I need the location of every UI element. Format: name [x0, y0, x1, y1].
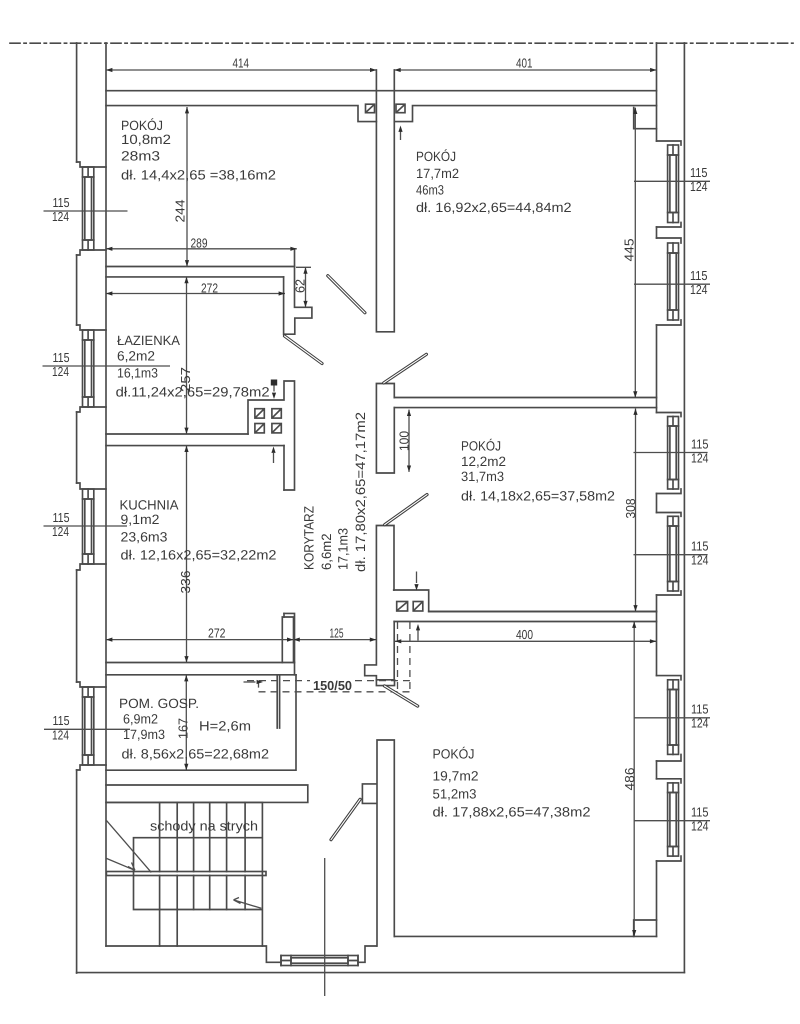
svg-text:272: 272: [201, 281, 218, 296]
svg-text:124: 124: [52, 524, 69, 539]
svg-text:486: 486: [622, 768, 637, 791]
svg-text:244: 244: [173, 200, 188, 223]
svg-text:445: 445: [622, 239, 637, 262]
svg-text:17,1m3: 17,1m3: [336, 528, 351, 570]
svg-text:31,7m3: 31,7m3: [461, 469, 504, 484]
svg-text:124: 124: [690, 282, 708, 297]
svg-text:124: 124: [690, 179, 708, 194]
svg-text:115: 115: [690, 165, 708, 180]
svg-text:19,7m2: 19,7m2: [433, 769, 479, 784]
svg-text:POKÓJ: POKÓJ: [416, 149, 456, 164]
svg-text:167: 167: [176, 718, 191, 739]
svg-text:124: 124: [52, 727, 69, 742]
svg-text:6,9m2: 6,9m2: [123, 712, 158, 727]
svg-text:414: 414: [233, 56, 250, 71]
svg-text:ŁAZIENKA: ŁAZIENKA: [117, 333, 180, 348]
svg-text:POM. GOSP.: POM. GOSP.: [119, 696, 199, 711]
svg-text:dł. 16,92x2,65=44,84m2: dł. 16,92x2,65=44,84m2: [416, 200, 572, 215]
svg-text:124: 124: [691, 450, 709, 465]
svg-text:336: 336: [178, 571, 193, 594]
svg-text:POKÓJ: POKÓJ: [461, 439, 501, 454]
svg-text:115: 115: [53, 350, 70, 365]
svg-text:150/50: 150/50: [313, 678, 352, 693]
svg-text:115: 115: [691, 805, 709, 820]
svg-text:272: 272: [208, 626, 226, 641]
svg-text:17,9m3: 17,9m3: [123, 727, 165, 742]
svg-text:124: 124: [52, 209, 69, 224]
svg-text:dł. 8,56x2,65=22,68m2: dł. 8,56x2,65=22,68m2: [122, 747, 270, 762]
svg-text:115: 115: [691, 539, 709, 554]
svg-text:124: 124: [691, 553, 709, 568]
svg-text:125: 125: [330, 626, 344, 641]
svg-text:KUCHNIA: KUCHNIA: [120, 498, 179, 513]
svg-text:115: 115: [691, 702, 709, 717]
svg-text:H=2,6m: H=2,6m: [199, 719, 251, 734]
svg-text:10,8m2: 10,8m2: [121, 132, 171, 147]
svg-text:dł. 17,88x2,65=47,38m2: dł. 17,88x2,65=47,38m2: [433, 805, 591, 820]
svg-text:KORYTARZ: KORYTARZ: [302, 506, 317, 570]
svg-text:124: 124: [52, 364, 69, 379]
svg-text:115: 115: [53, 713, 70, 728]
svg-text:400: 400: [516, 627, 533, 642]
svg-text:dł. 14,4x2,65 =38,16m2: dł. 14,4x2,65 =38,16m2: [121, 168, 276, 183]
svg-text:6,6m2: 6,6m2: [319, 534, 334, 571]
svg-text:dł. 12,16x2,65=32,22m2: dł. 12,16x2,65=32,22m2: [121, 548, 277, 563]
svg-text:115: 115: [691, 436, 709, 451]
svg-text:115: 115: [53, 510, 70, 525]
svg-text:124: 124: [691, 819, 709, 834]
svg-text:401: 401: [516, 56, 533, 71]
svg-text:115: 115: [53, 195, 70, 210]
svg-text:46m3: 46m3: [416, 183, 444, 198]
svg-text:100: 100: [397, 431, 412, 451]
svg-text:28m3: 28m3: [121, 148, 160, 163]
svg-text:dł. 14,18x2,65=37,58m2: dł. 14,18x2,65=37,58m2: [461, 489, 615, 504]
svg-text:POKÓJ: POKÓJ: [121, 118, 163, 133]
svg-text:16,1m3: 16,1m3: [117, 366, 158, 381]
svg-text:12,2m2: 12,2m2: [461, 454, 506, 469]
svg-text:POKÓJ: POKÓJ: [433, 746, 475, 761]
svg-text:dł. 17,80x2,65=47,17m2: dł. 17,80x2,65=47,17m2: [353, 412, 368, 572]
svg-text:9,1m2: 9,1m2: [121, 512, 160, 527]
svg-text:115: 115: [690, 268, 708, 283]
svg-text:17,7m2: 17,7m2: [416, 166, 459, 181]
svg-text:62: 62: [293, 279, 308, 293]
svg-text:23,6m3: 23,6m3: [121, 529, 168, 544]
svg-text:124: 124: [691, 716, 709, 731]
svg-text:51,2m3: 51,2m3: [433, 787, 477, 802]
svg-text:schody na strych: schody na strych: [150, 819, 258, 834]
svg-text:6,2m2: 6,2m2: [117, 349, 155, 364]
svg-text:dł.11,24x2,65=29,78m2: dł.11,24x2,65=29,78m2: [116, 384, 270, 399]
svg-text:308: 308: [623, 499, 638, 519]
svg-text:289: 289: [191, 236, 208, 251]
